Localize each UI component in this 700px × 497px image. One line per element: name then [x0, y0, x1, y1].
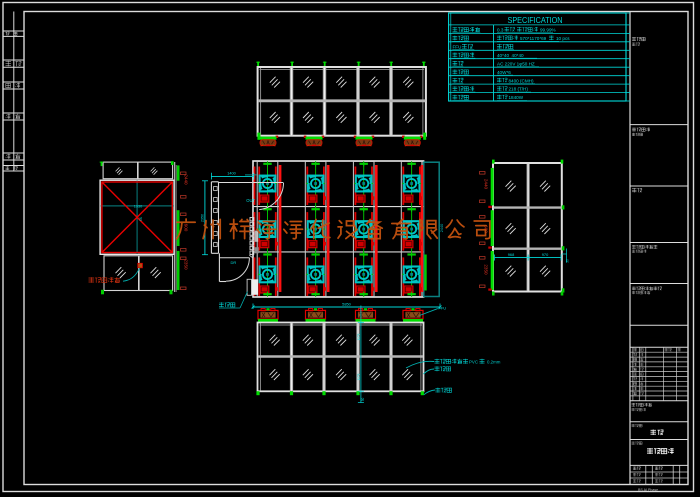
svg-text:1175: 1175: [357, 373, 361, 380]
svg-text:2350: 2350: [484, 264, 489, 275]
svg-text:40W*6: 40W*6: [497, 70, 511, 75]
svg-text:1400: 1400: [227, 172, 235, 176]
svg-text:FFU: FFU: [453, 44, 462, 49]
svg-text:99.99%: 99.99%: [540, 28, 556, 33]
svg-text:600: 600: [183, 224, 188, 232]
svg-text:5850: 5850: [342, 302, 351, 307]
svg-text:2440: 2440: [484, 179, 489, 190]
svg-text:10 pcs: 10 pcs: [556, 36, 570, 41]
svg-text:2440: 2440: [183, 174, 188, 185]
svg-text:SPECIFICATION: SPECIFICATION: [508, 16, 563, 25]
svg-text:FFU: FFU: [438, 306, 446, 311]
svg-text:AC 220V 1φ50 HZ: AC 220V 1φ50 HZ: [497, 61, 535, 66]
svg-text:970: 970: [542, 252, 549, 257]
svg-text:BS AI Phase: BS AI Phase: [638, 488, 658, 492]
svg-text:570*1170*69: 570*1170*69: [520, 36, 547, 41]
svg-text:1840W: 1840W: [509, 95, 524, 100]
svg-text:1930: 1930: [134, 204, 142, 208]
svg-text:2440: 2440: [440, 224, 444, 232]
svg-text:50: 50: [361, 398, 365, 402]
svg-text:1175: 1175: [357, 333, 361, 340]
svg-text:DR: DR: [231, 260, 237, 265]
svg-text:OUT: OUT: [246, 198, 255, 203]
svg-text:93: 93: [139, 217, 143, 221]
svg-text:2350: 2350: [183, 259, 188, 270]
svg-text:40*40 40*40: 40*40 40*40: [497, 53, 524, 58]
svg-text:50: 50: [566, 259, 570, 263]
svg-text:968: 968: [508, 252, 515, 257]
svg-text:2350: 2350: [201, 214, 205, 222]
svg-text:218 (T/H): 218 (T/H): [509, 87, 529, 92]
svg-text:0.3: 0.3: [497, 28, 504, 33]
svg-text:0.2mm: 0.2mm: [487, 359, 501, 364]
svg-text:8400 (CMH): 8400 (CMH): [509, 78, 534, 83]
svg-text:PVC: PVC: [469, 359, 478, 364]
